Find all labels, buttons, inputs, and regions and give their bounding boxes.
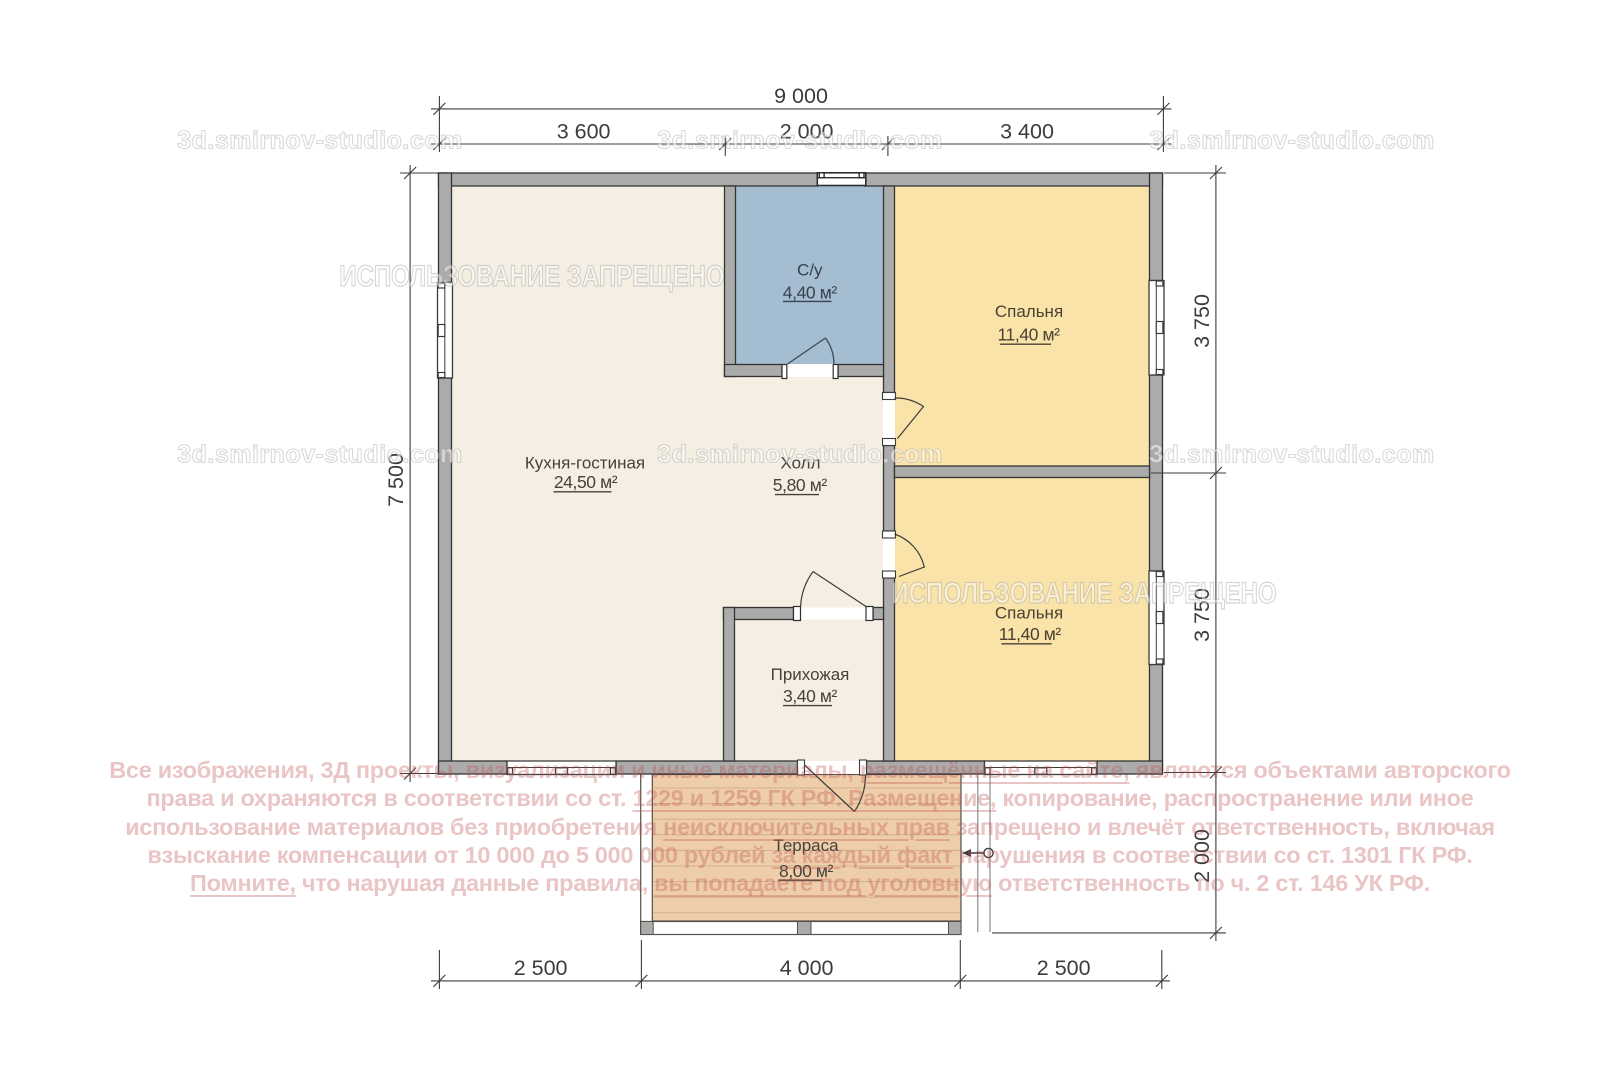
svg-text:4 000: 4 000 — [780, 956, 834, 980]
svg-text:Прихожая: Прихожая — [771, 665, 850, 684]
svg-text:11,40 м²: 11,40 м² — [997, 325, 1060, 345]
svg-text:4,40 м²: 4,40 м² — [783, 282, 838, 302]
svg-text:3 600: 3 600 — [557, 119, 611, 143]
svg-text:3,40 м²: 3,40 м² — [783, 686, 838, 706]
svg-text:9 000: 9 000 — [774, 84, 828, 108]
svg-text:2 500: 2 500 — [514, 956, 568, 980]
svg-text:3 400: 3 400 — [1000, 119, 1054, 143]
svg-text:5,80 м²: 5,80 м² — [773, 475, 828, 495]
svg-text:3 750: 3 750 — [1190, 294, 1214, 348]
svg-text:24,50 м²: 24,50 м² — [554, 472, 618, 492]
svg-text:2 500: 2 500 — [1037, 956, 1091, 980]
svg-text:11,40 м²: 11,40 м² — [999, 624, 1062, 644]
svg-text:Спальня: Спальня — [995, 302, 1063, 321]
svg-text:Кухня-гостиная: Кухня-гостиная — [525, 453, 645, 472]
svg-text:С/у: С/у — [797, 261, 823, 280]
